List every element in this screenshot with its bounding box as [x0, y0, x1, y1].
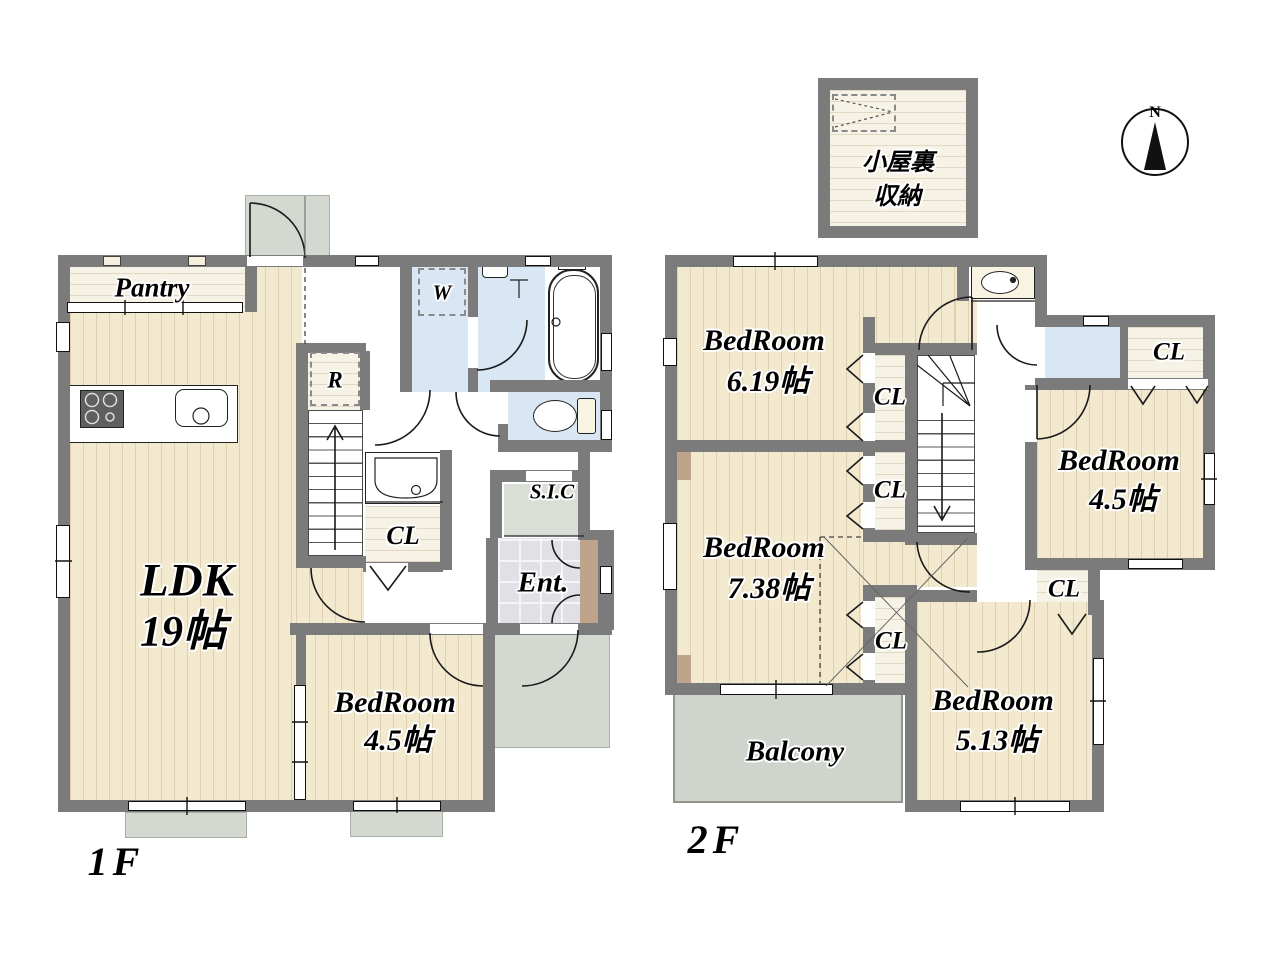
wall-segment — [490, 470, 502, 538]
window — [355, 256, 379, 266]
wall-segment — [483, 623, 495, 812]
bedroom619-size-label: 6.19帖 — [727, 367, 810, 397]
wall-segment — [905, 590, 917, 812]
floor-plan-canvas: Pantry W R CL S.I.C Ent. LDK 19帖 BedRoom… — [0, 0, 1280, 960]
wall-segment — [957, 255, 969, 301]
window — [56, 322, 70, 352]
wall-segment — [905, 590, 977, 602]
bedroom619-floor-ext — [863, 267, 957, 343]
floor1-label: 1F — [88, 842, 145, 882]
wall-segment — [468, 262, 478, 317]
wall-segment — [818, 78, 978, 90]
wall-segment — [296, 623, 306, 687]
terrace-slab-left — [125, 812, 247, 838]
door-opening — [520, 624, 578, 634]
door-opening — [1025, 390, 1037, 442]
sic-label: S.I.C — [530, 482, 574, 503]
window — [601, 410, 612, 440]
closet1-label: CL — [874, 385, 906, 410]
wall-segment — [665, 255, 677, 695]
sliding-door — [294, 685, 306, 800]
closet1f-label: CL — [386, 523, 419, 549]
wall-segment — [665, 440, 917, 452]
toilet1f-tank — [577, 398, 596, 434]
back-porch — [245, 195, 330, 258]
window — [601, 333, 612, 371]
window — [960, 801, 1070, 812]
shoe-cabinet — [580, 538, 600, 623]
desk-counter — [677, 452, 691, 480]
window — [663, 523, 677, 590]
ldk-size-label: 19帖 — [140, 611, 226, 654]
closet-opening — [861, 653, 875, 680]
closet-opening — [861, 601, 875, 627]
closet-opening — [861, 413, 875, 441]
bathroom-floor — [478, 262, 548, 392]
wall-segment — [818, 78, 830, 238]
wall-segment — [578, 452, 590, 538]
bedroom619-name-label: BedRoom — [703, 326, 825, 356]
wall-segment — [1025, 558, 1215, 570]
refrigerator-label: R — [327, 369, 342, 392]
entry-porch — [490, 633, 610, 748]
bedroom513-name-label: BedRoom — [932, 686, 1054, 716]
wall-segment — [665, 255, 1047, 267]
wall-segment — [360, 351, 370, 410]
closet-opening — [366, 563, 408, 572]
window — [56, 525, 70, 598]
toilet1f-bowl — [533, 400, 577, 432]
pantry-window — [103, 256, 121, 266]
wall-segment — [863, 343, 977, 355]
bedroom619-door-floor — [955, 299, 977, 345]
bedroom45-name-label: BedRoom — [1058, 446, 1180, 476]
balcony-label: Balcony — [746, 738, 844, 767]
stairs-1f — [308, 410, 363, 556]
window — [128, 801, 246, 811]
toilet2f-floor — [1045, 327, 1120, 378]
wall-segment — [490, 380, 612, 392]
attic-label-line2: 収納 — [873, 185, 921, 209]
floor2-label: 2F — [688, 820, 745, 860]
bedroom1f-name-label: BedRoom — [334, 688, 456, 718]
window — [525, 256, 551, 266]
window — [353, 801, 441, 811]
wall-segment — [486, 538, 498, 625]
closet-tr-label: CL — [1153, 340, 1185, 365]
pantry-window — [188, 256, 206, 266]
window — [720, 684, 833, 695]
wall-segment — [1120, 327, 1128, 380]
door-opening — [430, 624, 483, 634]
stairs-2f-steps — [918, 408, 974, 532]
window — [1128, 559, 1183, 569]
window — [600, 566, 612, 594]
wall-segment — [468, 368, 478, 392]
wall-segment — [1088, 558, 1100, 615]
ldk-floor — [70, 267, 302, 800]
passage-floor — [863, 542, 977, 587]
kitchen-sink — [175, 389, 228, 427]
desk-counter — [677, 655, 691, 683]
pantry-opening — [67, 302, 243, 313]
compass-north-label: N — [1149, 105, 1161, 121]
wall-segment — [1035, 315, 1215, 327]
bedroom738-floor — [677, 452, 863, 683]
window — [733, 256, 818, 267]
wall-segment — [498, 424, 508, 442]
closet4-label: CL — [1048, 577, 1080, 602]
closet2-label: CL — [874, 478, 906, 503]
closet3-label: CL — [875, 629, 907, 654]
attic-label-line1: 小屋裏 — [862, 151, 934, 175]
ldk-name-label: LDK — [140, 558, 234, 605]
terrace-slab-right — [350, 810, 443, 837]
door-opening — [247, 256, 303, 266]
bedroom513-size-label: 5.13帖 — [956, 726, 1039, 756]
wall-segment — [400, 255, 412, 392]
wall-segment — [1035, 255, 1047, 327]
bathtub-inner — [553, 275, 596, 379]
window — [1093, 658, 1104, 745]
vanity-counter — [365, 452, 443, 504]
closet-opening — [1128, 379, 1208, 389]
stove — [80, 390, 124, 428]
pantry-label: Pantry — [114, 275, 189, 302]
attic-ladder-hatch — [832, 94, 896, 132]
bedroom45-size-label: 4.5帖 — [1089, 485, 1157, 515]
closet-opening — [861, 353, 875, 383]
wall-segment — [498, 440, 612, 452]
bedroom738-name-label: BedRoom — [703, 533, 825, 563]
wall-segment — [818, 226, 978, 238]
closet-opening — [861, 502, 875, 528]
wall-segment — [1203, 315, 1215, 570]
wall-segment — [905, 343, 917, 545]
wall-segment — [296, 343, 308, 568]
wall-segment — [296, 556, 366, 568]
bedroom738-size-label: 7.38帖 — [728, 574, 811, 604]
bedroom1f-size-label: 4.5帖 — [364, 726, 432, 756]
window — [1204, 453, 1215, 505]
entrance-label: Ent. — [518, 569, 569, 598]
closet-opening — [861, 456, 875, 484]
wall-segment — [966, 78, 978, 238]
washer-label: W — [433, 283, 452, 304]
window — [663, 338, 677, 366]
ldk-floor-door-strip — [296, 568, 364, 623]
wall-segment — [440, 450, 452, 570]
window — [1083, 316, 1109, 326]
washbasin2f-bowl — [981, 271, 1019, 294]
